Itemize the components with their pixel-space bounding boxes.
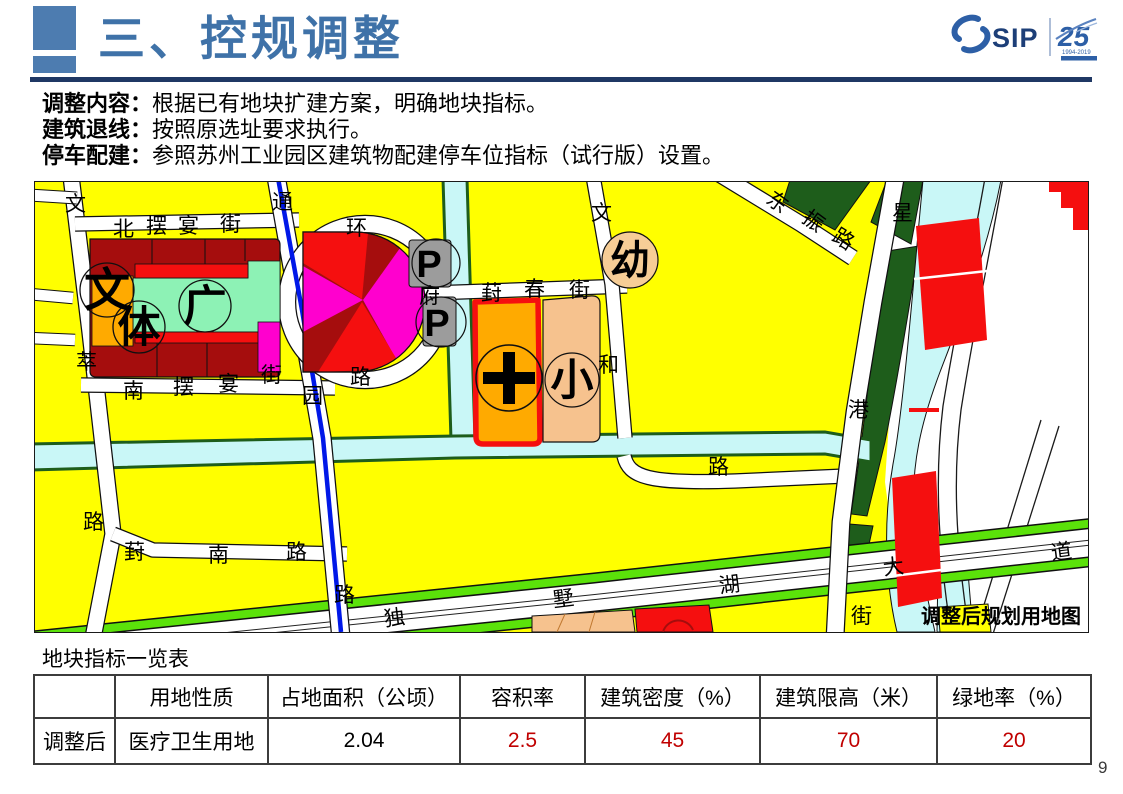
svg-text:路: 路 <box>286 541 307 564</box>
hospital-plot <box>475 300 542 444</box>
table-row: 调整后 医疗卫生用地 2.04 2.5 45 70 20 <box>34 718 1091 764</box>
intro-text: 调整内容：根据已有地块扩建方案，明确地块指标。 建筑退线：按照原选址要求执行。 … <box>42 91 724 169</box>
kindergarten-symbol: 幼 <box>602 232 658 288</box>
intro-line-2: 建筑退线：按照原选址要求执行。 <box>42 117 724 143</box>
svg-text:墅: 墅 <box>552 587 576 612</box>
svg-text:街: 街 <box>261 364 282 387</box>
cell-far: 2.5 <box>460 718 585 764</box>
indicator-table: 用地性质 占地面积（公顷） 容积率 建筑密度（%） 建筑限高（米） 绿地率（%）… <box>33 674 1092 765</box>
map-caption: 调整后规划用地图 <box>921 604 1081 628</box>
table-header-row: 用地性质 占地面积（公顷） 容积率 建筑密度（%） 建筑限高（米） 绿地率（%） <box>34 675 1091 718</box>
sports-symbol: 体 <box>118 304 161 352</box>
anniversary-25-icon: 25 1994-2019 <box>1056 19 1097 61</box>
header-area: 占地面积（公顷） <box>268 675 460 718</box>
page-number: 9 <box>1098 758 1107 778</box>
svg-text:通: 通 <box>272 191 293 214</box>
intro-line-1: 调整内容：根据已有地块扩建方案，明确地块指标。 <box>42 91 724 117</box>
cell-green-ratio: 20 <box>937 718 1091 764</box>
parking-symbol-1: P <box>416 244 441 286</box>
svg-text:文: 文 <box>591 202 612 225</box>
svg-text:湖: 湖 <box>718 573 742 598</box>
svg-text:宴: 宴 <box>218 373 239 396</box>
svg-text:星: 星 <box>892 202 913 225</box>
header-blank <box>34 675 115 718</box>
svg-text:摆: 摆 <box>173 376 194 399</box>
svg-text:葑: 葑 <box>124 541 145 564</box>
svg-text:文: 文 <box>65 193 86 216</box>
anniversary-years: 1994-2019 <box>1062 50 1091 56</box>
cell-area: 2.04 <box>268 718 460 764</box>
cell-land-use: 医疗卫生用地 <box>115 718 268 764</box>
header-divider <box>30 77 1092 82</box>
sip-s-icon <box>954 18 987 51</box>
header-green-ratio: 绿地率（%） <box>937 675 1091 718</box>
intro-line-3: 停车配建：参照苏州工业园区建筑物配建停车位指标（试行版）设置。 <box>42 143 724 169</box>
svg-text:道: 道 <box>1050 540 1074 565</box>
svg-text:宴: 宴 <box>178 215 199 238</box>
svg-text:环: 环 <box>346 217 367 240</box>
header-density: 建筑密度（%） <box>585 675 760 718</box>
svg-text:南: 南 <box>123 380 144 403</box>
svg-text:街: 街 <box>569 279 590 302</box>
svg-text:葑: 葑 <box>481 282 502 305</box>
header-far: 容积率 <box>460 675 585 718</box>
cell-density: 45 <box>585 718 760 764</box>
plaza-symbol: 广 <box>184 283 227 331</box>
svg-text:和: 和 <box>598 354 619 377</box>
svg-text:园: 园 <box>302 385 323 408</box>
sip-logo: SIP 25 1994-2019 <box>948 10 1100 66</box>
cell-row-name: 调整后 <box>34 718 115 764</box>
svg-text:萃: 萃 <box>76 351 97 374</box>
header-accent-bar <box>33 56 76 73</box>
svg-text:南: 南 <box>208 544 229 567</box>
svg-text:港: 港 <box>848 399 869 422</box>
header-height-limit: 建筑限高（米） <box>760 675 937 718</box>
svg-text:大: 大 <box>882 555 906 580</box>
header-accent-square <box>33 6 76 50</box>
sip-logo-text: SIP <box>992 23 1039 53</box>
svg-text:府: 府 <box>419 285 440 308</box>
svg-text:春: 春 <box>524 278 545 301</box>
page-title: 三、控规调整 <box>98 0 404 69</box>
parking-symbol-2: P <box>424 303 449 345</box>
svg-text:幼: 幼 <box>610 239 650 283</box>
school-plot: 小 <box>543 296 600 442</box>
svg-text:路: 路 <box>350 366 371 389</box>
svg-text:街: 街 <box>851 605 872 628</box>
svg-text:北: 北 <box>113 218 134 241</box>
logo-org-bar <box>1061 56 1097 61</box>
svg-text:路: 路 <box>83 511 104 534</box>
svg-text:路: 路 <box>334 584 355 607</box>
school-symbol: 小 <box>551 357 594 405</box>
table-title: 地块指标一览表 <box>42 643 189 673</box>
header-land-use: 用地性质 <box>115 675 268 718</box>
svg-text:路: 路 <box>708 456 729 479</box>
svg-text:街: 街 <box>220 213 241 236</box>
svg-text:独: 独 <box>383 606 407 631</box>
cell-height-limit: 70 <box>760 718 937 764</box>
land-use-map: P P 小 幼 <box>35 182 1088 632</box>
svg-text:摆: 摆 <box>146 215 167 238</box>
